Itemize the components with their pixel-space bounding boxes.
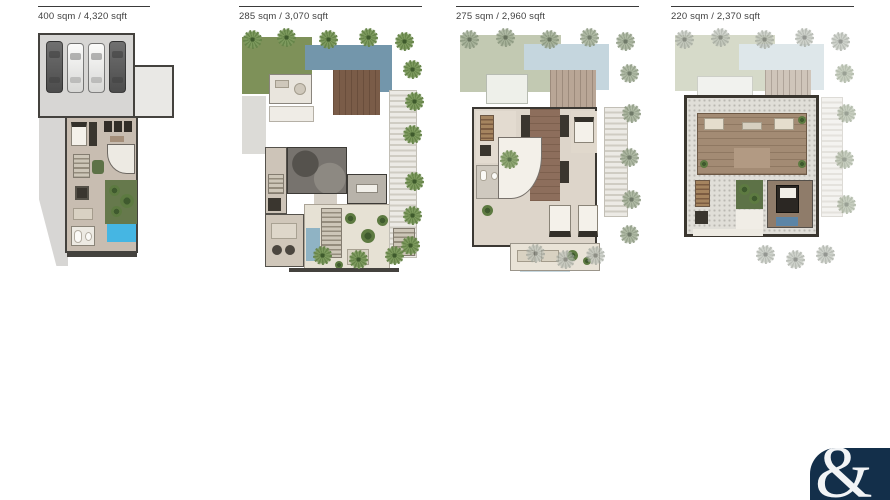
pool-below-corner (596, 70, 609, 90)
pool-below (739, 44, 824, 70)
pool-below-corner (811, 70, 824, 90)
palm-tree-icon (243, 30, 262, 49)
palm-tree-icon (835, 150, 854, 169)
plant-icon (700, 160, 708, 168)
table (110, 136, 124, 142)
floorplan-drawing-first-floor (456, 30, 642, 276)
palm-tree-icon (405, 172, 424, 191)
palm-tree-icon (540, 30, 559, 49)
plant-icon (739, 184, 750, 195)
first-floor-plate (472, 107, 597, 247)
palm-tree-icon (675, 30, 694, 49)
palm-tree-icon (496, 28, 515, 47)
chair (272, 245, 282, 255)
palm-tree-icon (616, 32, 635, 51)
brand-logo: & (810, 448, 890, 500)
palm-tree-icon (349, 250, 368, 269)
floorplan-drawing-basement (38, 30, 176, 272)
palm-tree-icon (831, 32, 850, 51)
palm-tree-icon (620, 64, 639, 83)
bathroom (71, 226, 95, 246)
driveway-ramp (39, 118, 68, 266)
pavilion-below (486, 74, 528, 104)
palm-tree-icon (556, 250, 575, 269)
basement-living-block (65, 116, 138, 253)
palm-tree-icon (755, 30, 774, 49)
courtyard-garden (105, 180, 137, 224)
ampersand-glyph: & (815, 448, 873, 500)
stairs-icon (480, 115, 494, 141)
palm-tree-icon (319, 30, 338, 49)
living-room (287, 147, 347, 194)
palm-tree-icon (795, 28, 814, 47)
wardrobe (89, 122, 97, 146)
car-icon (88, 43, 105, 93)
palm-tree-icon (620, 225, 639, 244)
cinema-seat (104, 121, 112, 132)
plant-icon (361, 229, 375, 243)
palm-tree-icon (277, 28, 296, 47)
bed (549, 205, 571, 237)
bathroom-curved (107, 144, 135, 174)
palm-tree-icon (786, 250, 805, 269)
rug (271, 223, 297, 239)
master-suite (767, 180, 813, 228)
palm-tree-icon (403, 206, 422, 225)
car-icon (109, 41, 126, 93)
palm-tree-icon (580, 28, 599, 47)
palm-tree-icon (460, 30, 479, 49)
planter (92, 160, 104, 174)
stairs-icon (73, 154, 90, 178)
palm-tree-icon (586, 246, 605, 265)
label-rule (38, 6, 150, 7)
table (294, 83, 306, 95)
floorplan-panel-1: 400 sqm / 4,320 sqft (38, 6, 176, 22)
label-rule (671, 6, 854, 7)
stairs-icon (695, 180, 710, 207)
floorplan-drawing-ground (239, 30, 425, 276)
bed (578, 205, 598, 237)
palm-tree-icon (401, 236, 420, 255)
stairs-icon (268, 174, 284, 194)
area-label: 285 sqm / 3,070 sqft (239, 11, 425, 22)
floorplan-panel-3: 275 sqm / 2,960 sqft (456, 6, 642, 22)
palm-tree-icon (622, 190, 641, 209)
kitchen (347, 174, 387, 204)
wardrobe (560, 115, 569, 137)
label-rule (456, 6, 639, 7)
area-label: 400 sqm / 4,320 sqft (38, 11, 176, 22)
bed (71, 122, 87, 146)
palm-tree-icon (622, 104, 641, 123)
swimming-pool (305, 45, 392, 70)
sink (85, 232, 92, 241)
wardrobe (521, 115, 530, 137)
pillows (780, 188, 796, 198)
plant-icon (377, 215, 388, 226)
cinema-seat (124, 121, 132, 132)
roof-terrace-block (684, 95, 819, 237)
swimming-pool-corner (380, 70, 392, 92)
plant-icon (749, 193, 760, 204)
pool-below (524, 44, 609, 70)
cinema-seat (114, 121, 122, 132)
palm-tree-icon (500, 150, 519, 169)
palm-tree-icon (816, 245, 835, 264)
palm-tree-icon (756, 245, 775, 264)
floorplan-panel-4: 220 sqm / 2,370 sqft (671, 6, 857, 22)
bathtub (74, 230, 82, 243)
palm-tree-icon (620, 148, 639, 167)
palm-tree-icon (313, 246, 332, 265)
kitchen-island (356, 184, 378, 193)
palm-tree-icon (837, 195, 856, 214)
pool-deck (333, 70, 380, 115)
guest-room (265, 214, 304, 267)
plant-icon (111, 206, 122, 217)
floorplan-panel-2: 285 sqm / 3,070 sqft (239, 6, 425, 22)
label-rule (239, 6, 422, 7)
plant-icon (120, 194, 134, 208)
car-icon (67, 43, 84, 93)
wardrobe (560, 161, 569, 183)
elevator (268, 198, 281, 211)
outdoor-lounge (269, 74, 312, 104)
sink (491, 172, 498, 180)
sofa (774, 118, 794, 130)
garage-area (38, 33, 135, 118)
palm-tree-icon (385, 246, 404, 265)
sofa (73, 208, 93, 220)
rug (734, 148, 770, 168)
car-icon (46, 41, 63, 93)
chair (285, 245, 295, 255)
bottom-wall (67, 253, 137, 257)
plant-icon (798, 160, 806, 168)
plunge-pool (107, 224, 136, 242)
terrace-walk (693, 229, 763, 236)
bed (776, 185, 799, 213)
plant-icon (482, 205, 493, 216)
bed (574, 117, 594, 143)
storage-room (133, 65, 174, 118)
deck-below (550, 70, 596, 112)
palm-tree-icon (395, 32, 414, 51)
area-label: 275 sqm / 2,960 sqft (456, 11, 642, 22)
table (742, 122, 762, 130)
bathtub (480, 170, 487, 181)
palm-tree-icon (526, 244, 545, 263)
palm-tree-icon (837, 104, 856, 123)
bottom-wall (289, 268, 399, 272)
elevator (480, 145, 491, 156)
blue-rug (776, 217, 798, 226)
plant-icon (345, 213, 356, 224)
palm-tree-icon (405, 92, 424, 111)
plant-icon (798, 116, 806, 124)
side-path (242, 96, 266, 154)
family-lounge (697, 113, 807, 175)
elevator (75, 186, 89, 200)
elevator (695, 211, 708, 224)
sofa (275, 80, 289, 88)
palm-tree-icon (835, 64, 854, 83)
palm-tree-icon (711, 28, 730, 47)
floorplan-drawing-roof (671, 30, 857, 276)
plant-icon (109, 185, 120, 196)
palm-tree-icon (403, 125, 422, 144)
sofa (704, 118, 724, 130)
area-label: 220 sqm / 2,370 sqft (671, 11, 857, 22)
palm-tree-icon (359, 28, 378, 47)
terrace (269, 106, 314, 122)
courtyard-void (736, 180, 763, 209)
palm-tree-icon (403, 60, 422, 79)
